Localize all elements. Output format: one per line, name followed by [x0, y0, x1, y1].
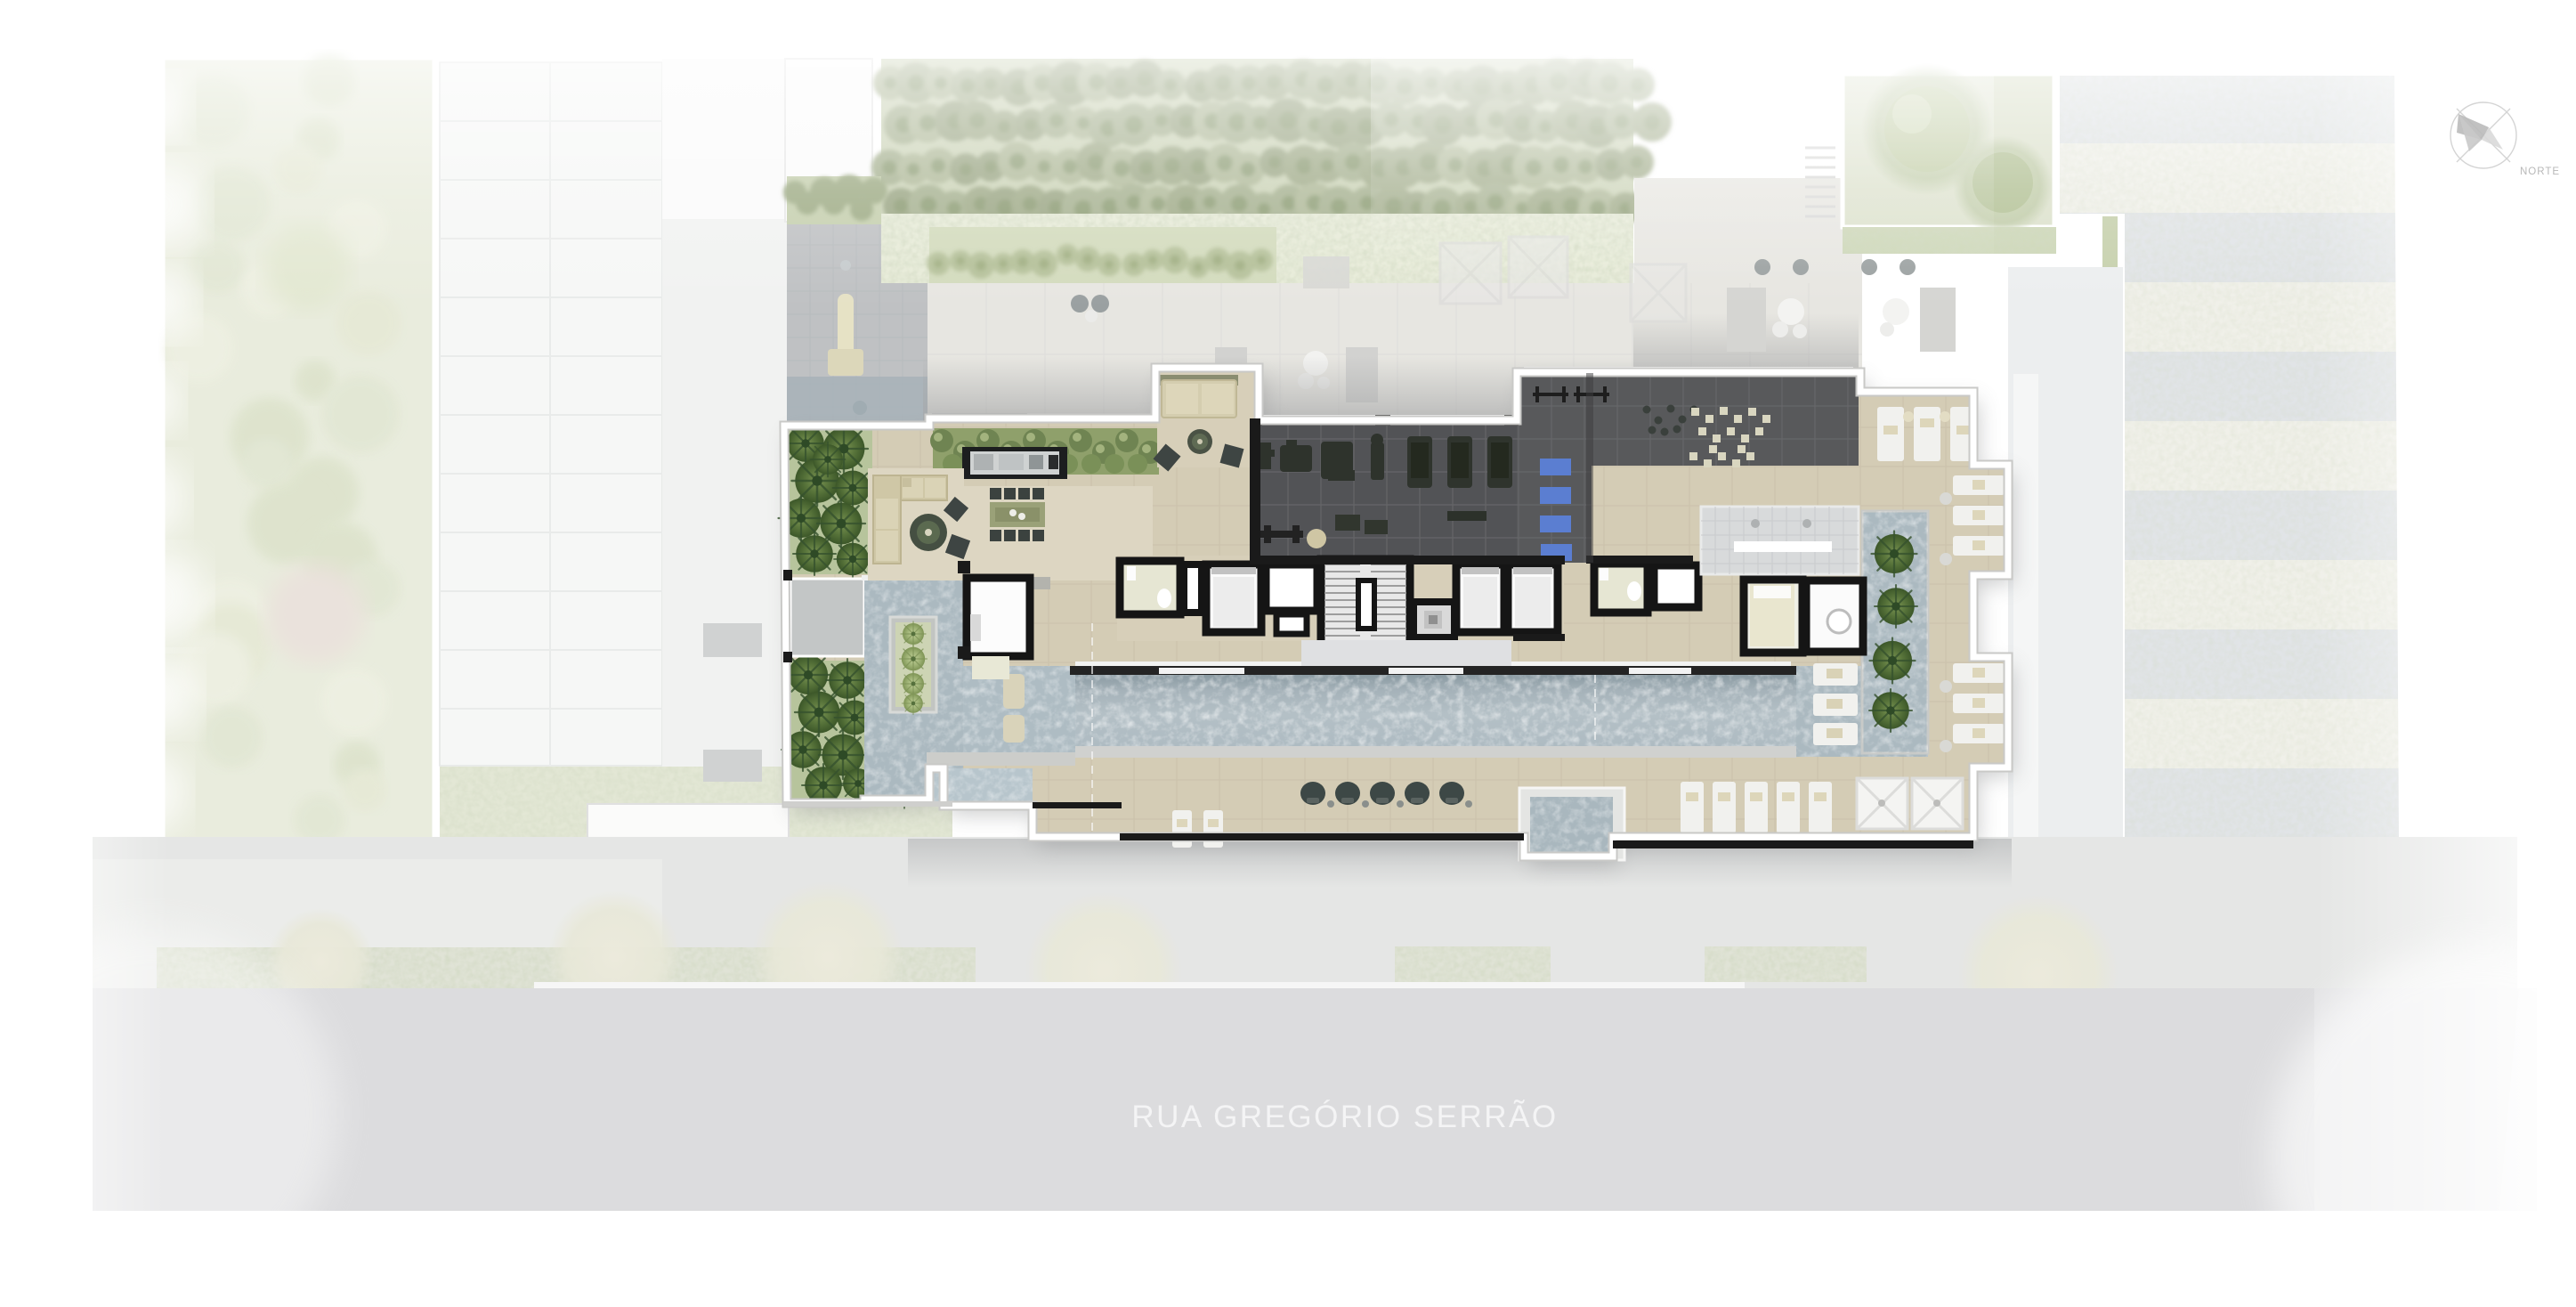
svg-text:RUA GREGÓRIO SERRÃO: RUA GREGÓRIO SERRÃO [1131, 1100, 1558, 1134]
svg-text:NORTE: NORTE [2520, 166, 2560, 177]
